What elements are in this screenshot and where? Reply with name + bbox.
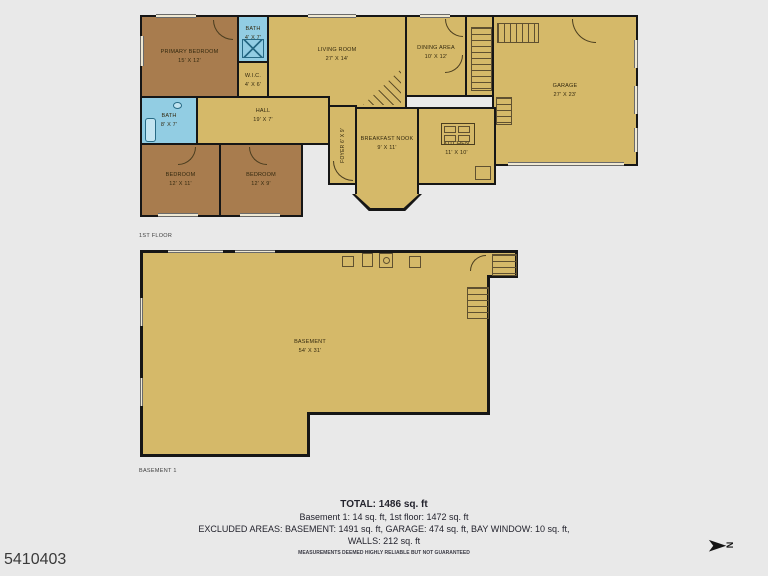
window <box>634 40 638 68</box>
room-dims: 6' X 9' <box>340 128 346 143</box>
water-heater <box>379 253 393 268</box>
basement-wall <box>140 250 143 457</box>
room-name: BEDROOM <box>166 171 196 180</box>
basement-label: BASEMENT 54' X 31' <box>220 338 400 356</box>
living-room-label: LIVING ROOM 27' X 14' <box>318 46 357 64</box>
bay-window-inner <box>355 194 419 208</box>
walls-area: WALLS: 212 sq. ft <box>0 535 768 547</box>
room-bedroom-1: BEDROOM 12' X 11' <box>140 143 221 217</box>
room-bath-top: BATH 4' X 7' <box>237 15 269 63</box>
room-dims: 15' X 12' <box>161 57 219 66</box>
door-arc <box>572 19 596 43</box>
stairs <box>497 23 539 43</box>
room-name: FOYER <box>340 144 346 162</box>
stairs <box>492 254 517 276</box>
room-kitchen: KITCHEN 11' X 10' <box>417 107 496 185</box>
hall-label: HALL 19' X 7' <box>253 107 273 125</box>
first-floor-caption: 1ST FLOOR <box>139 233 172 239</box>
room-name: BREAKFAST NOOK <box>361 135 414 144</box>
excluded-areas: EXCLUDED AREAS: BASEMENT: 1491 sq. ft, G… <box>0 523 768 535</box>
mls-number: 5410403 <box>4 551 66 569</box>
water-heater-circle <box>383 257 390 264</box>
counter <box>475 166 491 180</box>
room-name: LIVING ROOM <box>318 46 357 55</box>
stairs-to-basement <box>363 69 401 105</box>
room-dims: 11' X 10' <box>444 149 470 158</box>
utility-box <box>342 256 354 267</box>
floor-areas: Basement 1: 14 sq. ft, 1st floor: 1472 s… <box>0 511 768 523</box>
window <box>308 14 356 18</box>
bath-left-label: BATH 8' X 7' <box>161 112 177 130</box>
floorplan-basement: BASEMENT 54' X 31' <box>140 250 518 457</box>
garage-door-opening <box>508 162 624 166</box>
basement-wall <box>307 412 310 457</box>
room-name: W.I.C. <box>245 72 261 81</box>
window <box>140 36 144 66</box>
burner <box>458 126 470 133</box>
sink <box>173 102 182 109</box>
window <box>235 250 275 253</box>
room-bedroom-2: BEDROOM 12' X 9' <box>219 143 303 217</box>
burner <box>444 126 456 133</box>
window <box>168 250 223 253</box>
stairs <box>471 27 492 91</box>
room-garage: GARAGE 27' X 23' <box>492 15 638 166</box>
disclaimer: MEASUREMENTS DEEMED HIGHLY RELIABLE BUT … <box>0 550 768 556</box>
room-dims: 12' X 9' <box>246 180 276 189</box>
basement-wall <box>307 412 490 415</box>
room-dims: 27' X 14' <box>318 55 357 64</box>
room-name: PRIMARY BEDROOM <box>161 48 219 57</box>
room-breakfast-nook: BREAKFAST NOOK 9' X 11' <box>355 107 419 196</box>
window <box>240 213 280 217</box>
room-dims: 27' X 23' <box>553 91 578 100</box>
foyer-label: FOYER 6' X 9' <box>339 128 347 163</box>
window <box>158 213 198 217</box>
back-steps <box>496 97 512 125</box>
room-hall: HALL 19' X 7' <box>196 96 330 145</box>
room-name: DINING AREA <box>417 44 455 53</box>
primary-bedroom-label: PRIMARY BEDROOM 15' X 12' <box>161 48 219 66</box>
door-arc <box>249 147 267 165</box>
door-arc <box>178 147 196 165</box>
utility-box <box>362 253 373 267</box>
room-name: BEDROOM <box>246 171 276 180</box>
north-arrow: ➤ N <box>706 532 732 558</box>
kitchen-island <box>441 123 475 145</box>
bathtub <box>145 118 156 142</box>
total-area: TOTAL: 1486 sq. ft <box>0 499 768 511</box>
room-dims: 9' X 11' <box>361 144 414 153</box>
stairwell-upper <box>465 15 494 97</box>
room-name: BATH <box>161 112 177 121</box>
front-door-arc <box>333 161 353 181</box>
stairs <box>467 287 489 319</box>
utility-box <box>409 256 421 268</box>
floorplan-first-floor: PRIMARY BEDROOM 15' X 12' BATH 4' X 7' W… <box>0 0 768 240</box>
room-name: HALL <box>253 107 273 116</box>
area-summary: TOTAL: 1486 sq. ft Basement 1: 14 sq. ft… <box>0 499 768 556</box>
door-arc <box>445 55 463 73</box>
window <box>420 14 450 18</box>
room-label: BASEMENT 54' X 31' <box>220 338 400 356</box>
bay-window <box>352 194 422 211</box>
room-name: GARAGE <box>553 82 578 91</box>
room-dims: 54' X 31' <box>220 347 400 356</box>
window <box>156 14 196 18</box>
room-dining-area: DINING AREA 10' X 12' <box>405 15 467 97</box>
room-dims: 8' X 7' <box>161 121 177 130</box>
room-foyer: FOYER 6' X 9' <box>328 105 357 185</box>
door-arc <box>445 19 463 37</box>
window <box>140 298 143 326</box>
basement-wall <box>140 454 310 457</box>
room-name: BASEMENT <box>220 338 400 347</box>
bedroom-2-label: BEDROOM 12' X 9' <box>246 171 276 189</box>
room-dims: 4' X 6' <box>245 81 261 90</box>
room-bath-left: BATH 8' X 7' <box>140 96 198 145</box>
garage-label: GARAGE 27' X 23' <box>553 82 578 100</box>
window <box>634 128 638 152</box>
bedroom-1-label: BEDROOM 12' X 11' <box>166 171 196 189</box>
room-primary-bedroom: PRIMARY BEDROOM 15' X 12' <box>140 15 239 98</box>
north-letter: N <box>724 542 734 549</box>
basement-caption: BASEMENT 1 <box>139 468 177 474</box>
door-arc <box>213 20 233 40</box>
breakfast-nook-label: BREAKFAST NOOK 9' X 11' <box>361 135 414 153</box>
burner <box>458 135 470 142</box>
room-name: BATH <box>245 25 261 34</box>
burner <box>444 135 456 142</box>
window <box>634 86 638 114</box>
window <box>140 378 143 406</box>
room-dims: 19' X 7' <box>253 116 273 125</box>
shower <box>242 39 264 58</box>
wic-label: W.I.C. 4' X 6' <box>245 72 261 90</box>
room-wic: W.I.C. 4' X 6' <box>237 61 269 100</box>
room-living-room: LIVING ROOM 27' X 14' <box>267 15 407 109</box>
room-dims: 12' X 11' <box>166 180 196 189</box>
